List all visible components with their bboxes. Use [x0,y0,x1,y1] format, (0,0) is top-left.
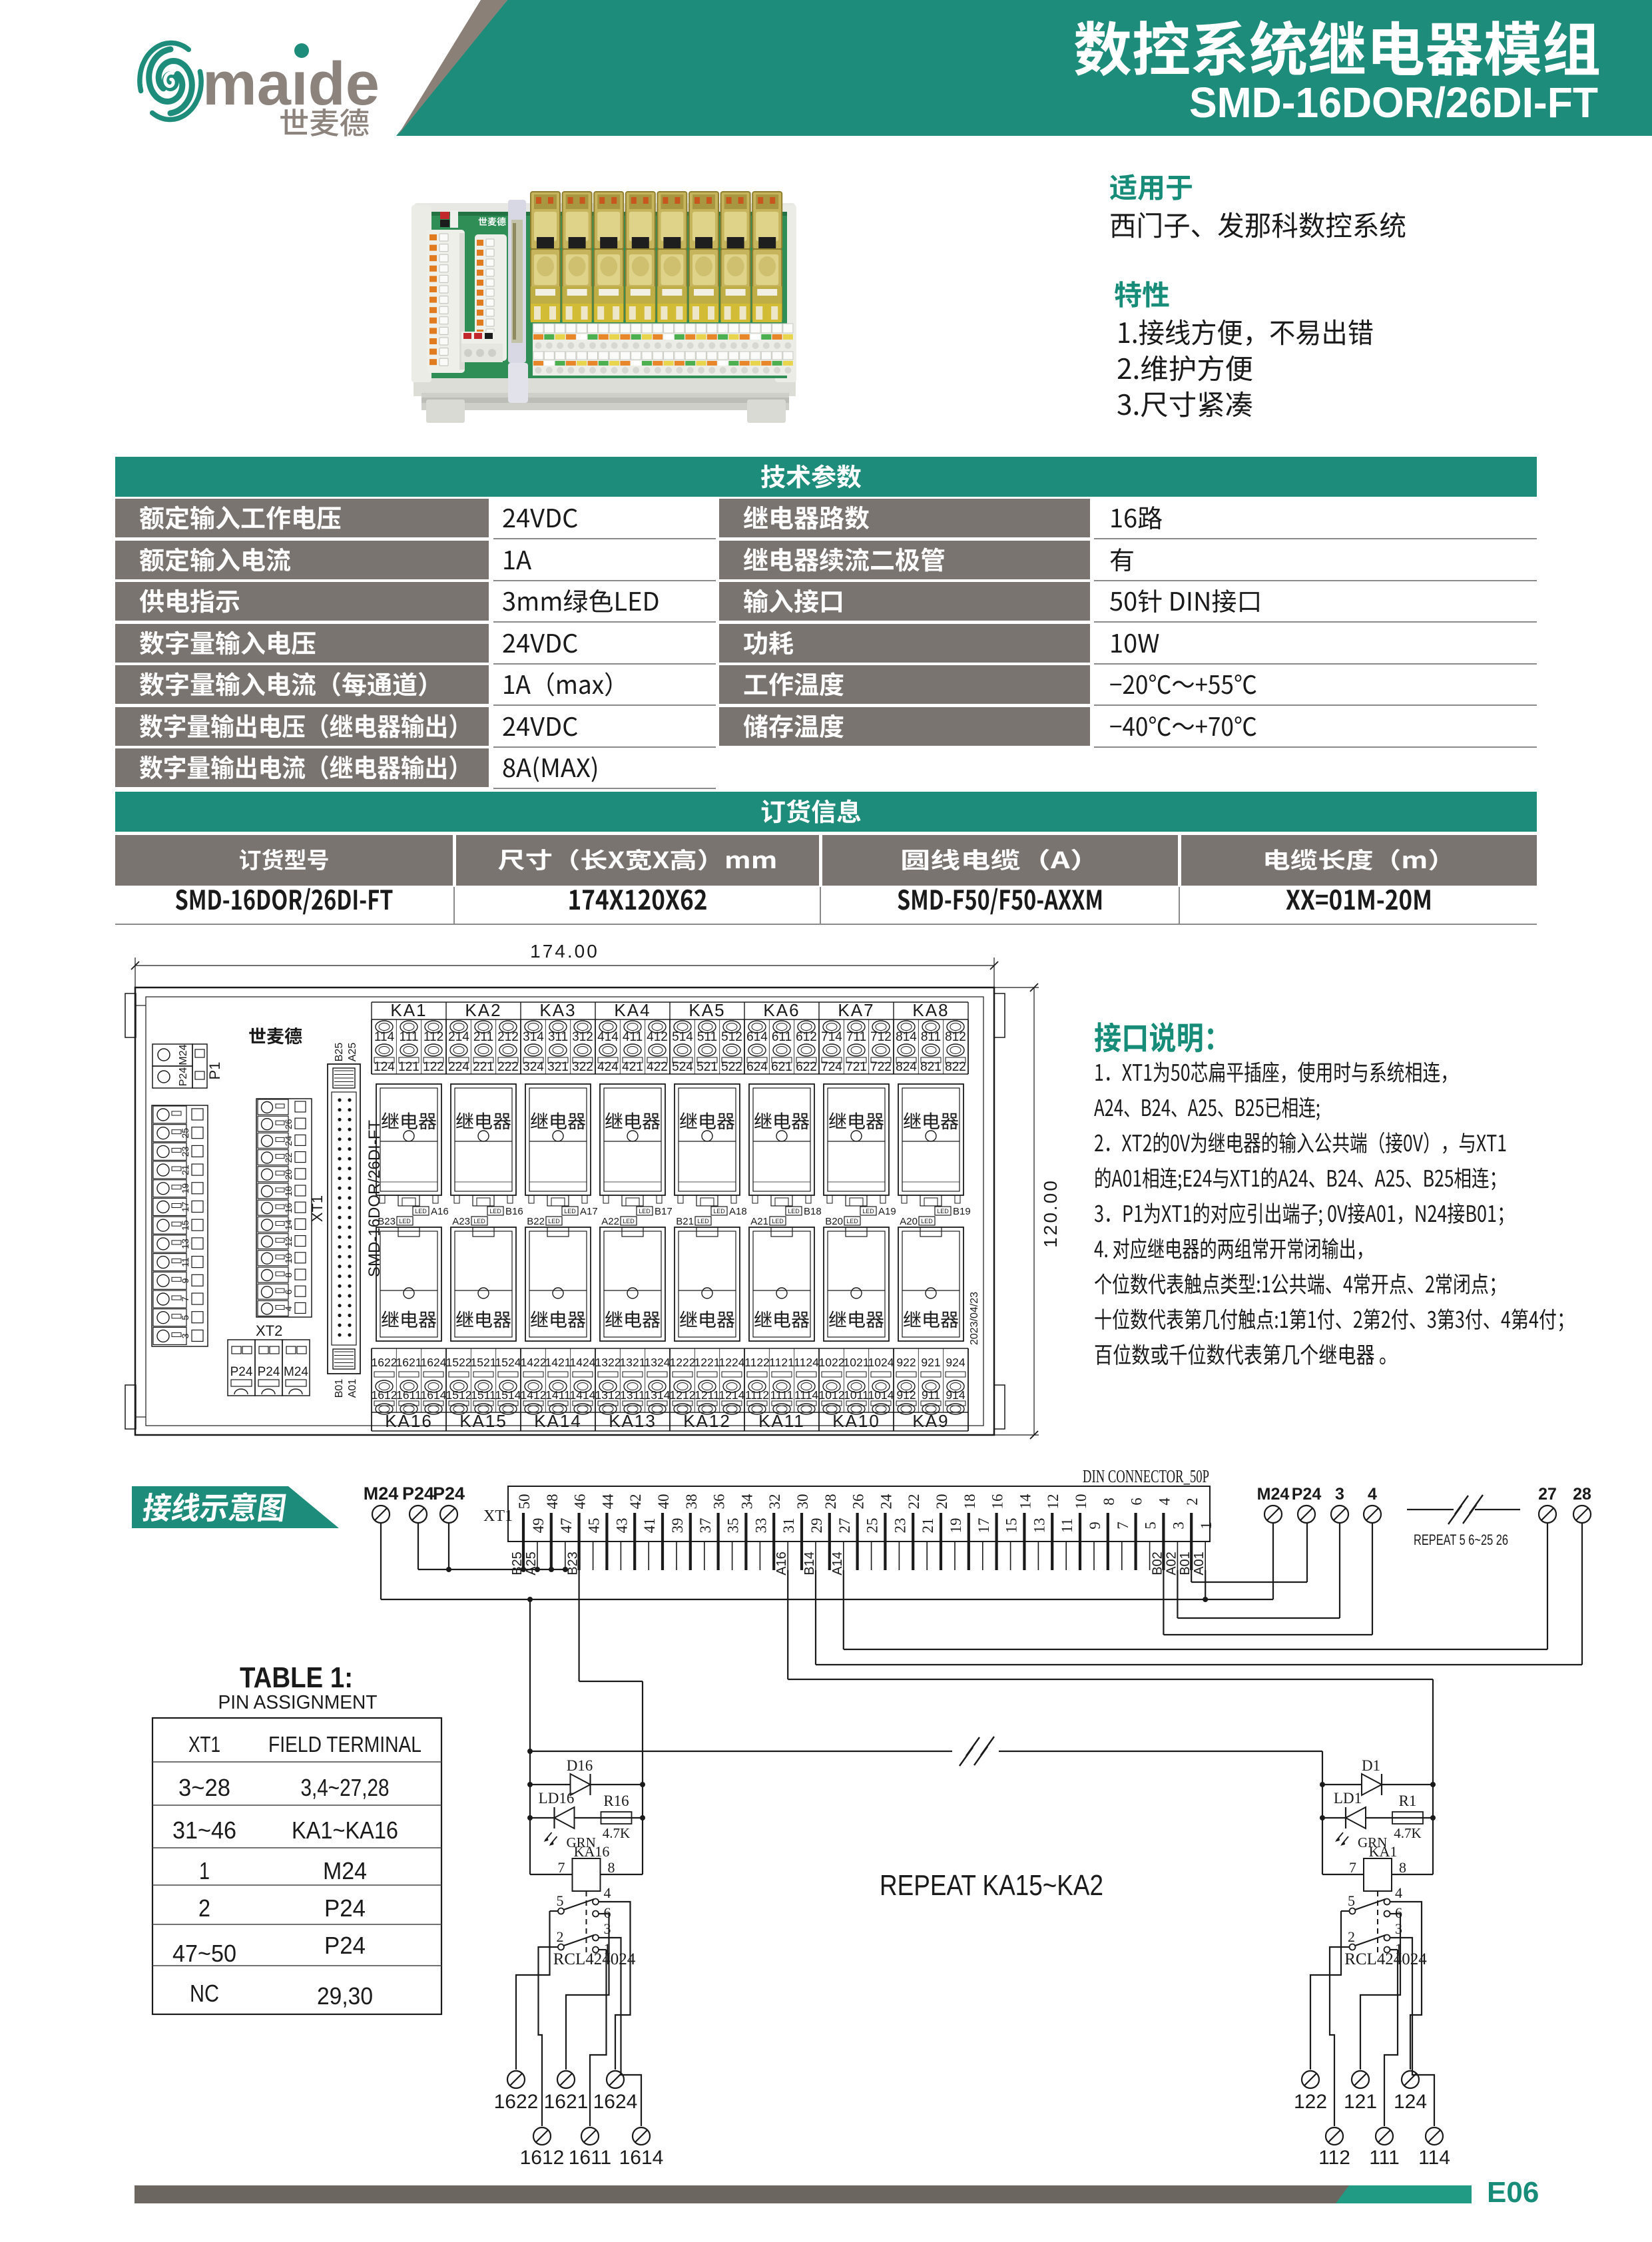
svg-text:122: 122 [1294,2091,1327,2113]
svg-text:B23: B23 [566,1551,581,1575]
svg-text:6: 6 [1129,1498,1145,1506]
svg-text:1414: 1414 [570,1388,596,1402]
svg-text:DIN CONNECTOR_50P: DIN CONNECTOR_50P [1083,1466,1209,1486]
svg-text:1621: 1621 [544,2091,589,2113]
svg-text:22: 22 [906,1494,922,1510]
svg-text:924: 924 [946,1356,965,1369]
svg-text:324: 324 [523,1060,544,1074]
svg-text:P24: P24 [230,1365,253,1379]
svg-text:421: 421 [622,1060,643,1074]
svg-text:414: 414 [597,1030,619,1044]
svg-text:214: 214 [448,1030,469,1044]
svg-text:1314: 1314 [645,1388,671,1402]
svg-text:B25: B25 [334,1043,345,1062]
svg-text:B01: B01 [334,1379,345,1398]
svg-text:1411: 1411 [545,1388,571,1402]
svg-text:KA5: KA5 [688,1000,725,1020]
svg-text:TABLE 1:: TABLE 1: [240,1661,353,1694]
svg-text:3: 3 [1395,1920,1402,1937]
svg-text:2: 2 [1184,1498,1201,1506]
svg-text:KA3: KA3 [539,1000,576,1020]
svg-text:B01: B01 [1178,1551,1193,1575]
svg-text:211: 211 [473,1030,493,1044]
svg-text:B17: B17 [655,1206,673,1217]
svg-text:312: 312 [572,1030,593,1044]
svg-text:46: 46 [572,1494,589,1510]
svg-text:1311: 1311 [620,1388,645,1402]
svg-text:14: 14 [283,1219,294,1230]
svg-text:KA13: KA13 [609,1411,657,1431]
svg-text:1121: 1121 [769,1356,794,1369]
svg-text:LED: LED [473,1218,485,1225]
svg-text:13: 13 [1031,1518,1047,1534]
svg-text:E06: E06 [1487,2176,1539,2209]
svg-text:LED: LED [623,1218,635,1225]
svg-text:KA15: KA15 [459,1411,507,1431]
svg-text:M24: M24 [1257,1485,1290,1504]
svg-text:SMD-16DOR/26DI-FT: SMD-16DOR/26DI-FT [1189,79,1598,127]
svg-text:3~28: 3~28 [178,1774,230,1801]
svg-text:B19: B19 [953,1206,971,1217]
svg-text:KA7: KA7 [838,1000,874,1020]
svg-text:311: 311 [548,1030,568,1044]
svg-text:LED: LED [489,1208,501,1215]
svg-text:maıde: maıde [202,50,380,118]
svg-text:121: 121 [1344,2091,1377,2113]
svg-text:44: 44 [599,1494,616,1510]
svg-text:LED: LED [937,1208,949,1215]
svg-text:B22: B22 [527,1216,545,1227]
svg-text:LED: LED [697,1218,709,1225]
svg-text:B21: B21 [676,1216,694,1227]
svg-text:P24: P24 [324,1894,366,1922]
svg-text:A16: A16 [774,1551,789,1575]
svg-text:4: 4 [1395,1884,1402,1901]
svg-text:27: 27 [836,1518,853,1534]
svg-text:1514: 1514 [495,1388,521,1402]
svg-text:A20: A20 [900,1216,918,1227]
svg-text:1624: 1624 [593,2091,638,2113]
svg-text:1014: 1014 [868,1388,894,1402]
svg-text:124: 124 [1394,2091,1427,2113]
svg-text:1112: 1112 [745,1388,769,1402]
svg-text:721: 721 [846,1060,867,1074]
svg-text:121: 121 [398,1060,419,1074]
svg-text:621: 621 [771,1060,792,1074]
svg-text:2: 2 [557,1928,564,1945]
svg-text:111: 111 [400,1030,419,1044]
svg-text:5: 5 [557,1892,564,1909]
svg-text:1321: 1321 [620,1356,646,1369]
svg-text:39: 39 [669,1518,686,1534]
svg-text:REPEAT KA15~KA2: REPEAT KA15~KA2 [880,1869,1103,1902]
svg-text:120.00: 120.00 [1040,1179,1061,1248]
svg-text:26: 26 [850,1494,867,1510]
svg-text:21: 21 [920,1518,936,1534]
svg-text:521: 521 [696,1060,718,1074]
svg-text:2: 2 [1348,1928,1355,1945]
svg-text:1: 1 [1198,1522,1215,1530]
svg-text:36: 36 [711,1494,728,1510]
svg-text:R1: R1 [1399,1793,1417,1809]
svg-text:1021: 1021 [844,1356,870,1369]
svg-text:24: 24 [283,1135,294,1146]
svg-text:16: 16 [989,1494,1006,1510]
svg-text:811: 811 [921,1030,941,1044]
svg-text:10: 10 [1073,1494,1089,1510]
svg-text:16: 16 [283,1203,294,1213]
svg-text:LD16: LD16 [539,1790,575,1807]
svg-text:1212: 1212 [670,1388,696,1402]
svg-text:SMD-16DOR/26DI-FT: SMD-16DOR/26DI-FT [366,1120,384,1277]
svg-text:1122: 1122 [744,1356,770,1369]
svg-text:1124: 1124 [794,1356,819,1369]
svg-text:10: 10 [283,1253,294,1264]
svg-text:P24: P24 [433,1484,465,1504]
svg-text:224: 224 [448,1060,469,1074]
svg-text:47: 47 [558,1518,575,1534]
svg-text:28: 28 [1573,1485,1591,1504]
svg-text:P24: P24 [1292,1485,1322,1504]
svg-text:4.7K: 4.7K [1394,1825,1421,1841]
svg-text:412: 412 [647,1030,668,1044]
svg-text:40: 40 [655,1494,672,1510]
svg-text:5: 5 [180,1315,190,1320]
svg-text:1: 1 [199,1857,210,1884]
svg-text:1222: 1222 [670,1356,696,1369]
svg-text:114: 114 [374,1030,395,1044]
svg-text:912: 912 [896,1388,916,1402]
svg-text:1421: 1421 [545,1356,571,1369]
svg-text:1024: 1024 [868,1356,894,1369]
svg-text:P24: P24 [324,1932,366,1959]
svg-text:112: 112 [1318,2147,1350,2169]
svg-text:124: 124 [374,1060,395,1074]
svg-text:50: 50 [516,1494,533,1510]
svg-text:12: 12 [1045,1494,1061,1510]
svg-text:NC: NC [190,1980,219,2007]
svg-text:1622: 1622 [494,2091,539,2113]
svg-text:KA16: KA16 [574,1843,610,1860]
svg-text:A21: A21 [750,1216,768,1227]
svg-text:5: 5 [1348,1892,1355,1909]
svg-text:822: 822 [945,1060,966,1074]
svg-text:A19: A19 [878,1206,896,1217]
svg-text:11: 11 [1059,1518,1075,1533]
svg-text:1611: 1611 [396,1388,421,1402]
svg-text:24: 24 [878,1494,894,1510]
svg-text:D16: D16 [567,1757,593,1774]
svg-text:1612: 1612 [372,1388,398,1402]
svg-text:6: 6 [283,1289,294,1294]
svg-text:B18: B18 [804,1206,822,1217]
svg-text:LED: LED [639,1208,651,1215]
svg-text:1214: 1214 [719,1388,745,1402]
svg-text:KA6: KA6 [763,1000,800,1020]
svg-text:B23: B23 [378,1216,396,1227]
svg-text:824: 824 [896,1060,917,1074]
svg-text:A14: A14 [830,1551,845,1575]
svg-text:422: 422 [647,1060,668,1074]
svg-text:1621: 1621 [396,1356,422,1369]
svg-text:18: 18 [962,1494,978,1510]
svg-text:28: 28 [822,1494,839,1510]
svg-text:13: 13 [180,1239,190,1249]
svg-text:23: 23 [180,1146,190,1157]
svg-text:614: 614 [746,1030,768,1044]
svg-text:321: 321 [547,1060,569,1074]
svg-text:KA16: KA16 [385,1411,433,1431]
svg-text:522: 522 [721,1060,742,1074]
svg-text:33: 33 [752,1518,769,1534]
svg-text:RCL424024: RCL424024 [553,1950,636,1968]
svg-text:32: 32 [766,1494,783,1510]
svg-text:29,30: 29,30 [317,1982,373,2010]
svg-text:722: 722 [870,1060,892,1074]
svg-text:1614: 1614 [619,2147,664,2169]
svg-text:622: 622 [796,1060,817,1074]
svg-text:1011: 1011 [844,1388,869,1402]
svg-text:7: 7 [180,1296,190,1302]
svg-text:111: 111 [1369,2147,1400,2169]
svg-text:1221: 1221 [694,1356,720,1369]
svg-text:KA11: KA11 [758,1411,805,1431]
svg-text:17: 17 [180,1202,190,1213]
svg-text:4: 4 [1368,1485,1377,1504]
svg-text:A01: A01 [1192,1551,1207,1575]
svg-text:9: 9 [180,1278,190,1283]
svg-text:48: 48 [544,1494,561,1510]
svg-text:712: 712 [870,1030,892,1044]
svg-text:724: 724 [821,1060,842,1074]
svg-text:17: 17 [975,1518,992,1534]
svg-text:19: 19 [948,1518,964,1534]
svg-text:1524: 1524 [495,1356,521,1369]
svg-text:23: 23 [892,1518,908,1534]
svg-text:PIN ASSIGNMENT: PIN ASSIGNMENT [218,1692,378,1713]
svg-text:1412: 1412 [521,1388,547,1402]
svg-text:LD1: LD1 [1334,1790,1362,1807]
svg-text:R16: R16 [603,1793,629,1809]
svg-text:KA8: KA8 [912,1000,949,1020]
svg-text:LED: LED [862,1208,874,1215]
svg-text:1511: 1511 [471,1388,496,1402]
svg-text:511: 511 [697,1030,717,1044]
svg-text:1424: 1424 [570,1356,596,1369]
svg-text:1521: 1521 [471,1356,497,1369]
svg-text:2023/04/23: 2023/04/23 [969,1292,980,1345]
svg-text:KA9: KA9 [912,1411,949,1431]
svg-text:25: 25 [864,1518,881,1534]
svg-text:B02: B02 [1150,1551,1165,1575]
svg-text:LED: LED [399,1218,411,1225]
svg-text:21: 21 [180,1165,190,1175]
svg-text:LED: LED [713,1208,725,1215]
svg-text:XT2: XT2 [256,1322,282,1339]
svg-text:821: 821 [920,1060,942,1074]
svg-text:1614: 1614 [421,1388,447,1402]
svg-text:7: 7 [1115,1522,1131,1530]
svg-text:KA12: KA12 [683,1411,731,1431]
svg-text:LED: LED [772,1218,784,1225]
svg-text:921: 921 [921,1356,940,1369]
svg-text:714: 714 [821,1030,842,1044]
svg-text:14: 14 [1017,1494,1033,1510]
svg-text:30: 30 [794,1494,811,1510]
svg-text:8: 8 [1399,1859,1406,1876]
svg-text:B16: B16 [505,1206,523,1217]
svg-text:514: 514 [672,1030,693,1044]
svg-text:3: 3 [604,1920,611,1937]
svg-text:A16: A16 [431,1206,449,1217]
svg-text:35: 35 [725,1518,742,1534]
svg-text:38: 38 [683,1494,700,1510]
svg-text:18: 18 [283,1186,294,1197]
svg-text:A01: A01 [347,1379,358,1398]
svg-text:KA14: KA14 [534,1411,582,1431]
svg-text:22: 22 [283,1153,294,1163]
svg-text:411: 411 [623,1030,643,1044]
svg-text:1324: 1324 [645,1356,671,1369]
svg-text:31: 31 [780,1518,797,1534]
svg-text:26: 26 [283,1119,294,1129]
svg-text:M24: M24 [178,1044,189,1065]
svg-text:P24: P24 [178,1067,189,1087]
svg-text:1422: 1422 [521,1356,547,1369]
svg-text:FIELD TERMINAL: FIELD TERMINAL [268,1732,421,1757]
svg-text:42: 42 [627,1494,644,1510]
svg-text:1211: 1211 [694,1388,720,1402]
svg-text:15: 15 [180,1220,190,1231]
svg-text:2: 2 [198,1894,210,1922]
svg-text:3: 3 [1335,1485,1344,1504]
svg-text:15: 15 [1003,1518,1020,1534]
svg-text:612: 612 [796,1030,817,1044]
svg-text:112: 112 [423,1030,443,1044]
svg-text:A18: A18 [729,1206,747,1217]
svg-text:A02: A02 [1164,1551,1179,1575]
svg-text:1622: 1622 [372,1356,398,1369]
svg-text:XT1: XT1 [309,1195,326,1222]
svg-text:49: 49 [530,1518,547,1534]
svg-text:3: 3 [1170,1522,1187,1530]
svg-text:KA1~KA16: KA1~KA16 [292,1817,398,1844]
svg-text:9: 9 [1087,1522,1103,1530]
svg-text:1612: 1612 [520,2147,565,2169]
svg-text:D1: D1 [1362,1757,1380,1774]
svg-text:7: 7 [558,1859,565,1876]
svg-text:LED: LED [788,1208,800,1215]
svg-text:LED: LED [548,1218,560,1225]
svg-text:M24: M24 [364,1484,399,1504]
svg-text:812: 812 [945,1030,966,1044]
svg-text:1022: 1022 [819,1356,845,1369]
svg-text:3,4~27,28: 3,4~27,28 [301,1774,390,1801]
svg-text:LED: LED [415,1208,427,1215]
svg-text:1322: 1322 [595,1356,621,1369]
svg-text:1111: 1111 [770,1388,793,1402]
svg-text:524: 524 [672,1060,693,1074]
svg-text:1624: 1624 [421,1356,447,1369]
svg-text:1522: 1522 [446,1356,472,1369]
svg-text:611: 611 [772,1030,792,1044]
svg-text:REPEAT 5 6~25 26: REPEAT 5 6~25 26 [1414,1532,1508,1548]
svg-text:KA2: KA2 [465,1000,501,1020]
svg-text:19: 19 [180,1183,190,1194]
svg-text:M24: M24 [323,1857,367,1884]
svg-text:222: 222 [497,1060,519,1074]
svg-text:12: 12 [283,1237,294,1247]
svg-text:8: 8 [1101,1498,1117,1506]
svg-text:114: 114 [1418,2147,1450,2169]
svg-text:922: 922 [896,1356,916,1369]
svg-text:M24: M24 [284,1365,308,1379]
svg-text:8: 8 [283,1272,294,1278]
svg-text:29: 29 [808,1518,825,1534]
svg-text:B14: B14 [802,1551,817,1575]
svg-text:1312: 1312 [595,1388,621,1402]
svg-text:1114: 1114 [794,1388,819,1402]
svg-text:P24: P24 [258,1365,280,1379]
svg-text:322: 322 [572,1060,593,1074]
svg-text:25: 25 [180,1128,190,1139]
svg-text:KA4: KA4 [614,1000,651,1020]
svg-text:424: 424 [597,1060,619,1074]
svg-text:512: 512 [721,1030,742,1044]
svg-text:LED: LED [846,1218,858,1225]
svg-text:27: 27 [1538,1485,1557,1504]
svg-text:XT1: XT1 [188,1732,220,1757]
svg-text:KA1: KA1 [390,1000,427,1020]
svg-text:KA1: KA1 [1369,1843,1398,1860]
svg-text:41: 41 [641,1518,658,1534]
svg-text:4: 4 [283,1306,294,1311]
svg-text:P24: P24 [402,1484,434,1504]
svg-text:4: 4 [604,1884,611,1901]
svg-text:711: 711 [846,1030,866,1044]
svg-text:221: 221 [473,1060,494,1074]
svg-text:LED: LED [921,1218,933,1225]
svg-text:A23: A23 [452,1216,470,1227]
svg-text:1224: 1224 [719,1356,745,1369]
svg-text:RCL424024: RCL424024 [1344,1950,1427,1968]
svg-text:7: 7 [1349,1859,1356,1876]
svg-text:624: 624 [746,1060,768,1074]
svg-text:4: 4 [1156,1498,1173,1506]
svg-text:6: 6 [1395,1904,1402,1921]
svg-text:914: 914 [946,1388,965,1402]
svg-text:1512: 1512 [446,1388,472,1402]
svg-text:LED: LED [564,1208,576,1215]
svg-text:5: 5 [1143,1522,1159,1530]
svg-text:6: 6 [604,1904,611,1921]
svg-text:4.7K: 4.7K [603,1825,630,1841]
svg-text:XT1: XT1 [483,1508,513,1525]
svg-text:37: 37 [697,1518,714,1534]
svg-text:122: 122 [423,1060,444,1074]
svg-text:47~50: 47~50 [172,1940,236,1967]
svg-text:P1: P1 [206,1062,223,1080]
svg-text:45: 45 [586,1518,603,1534]
svg-text:A22: A22 [601,1216,619,1227]
svg-text:KA10: KA10 [832,1411,880,1431]
svg-text:911: 911 [922,1388,940,1402]
svg-text:3: 3 [180,1333,190,1338]
svg-text:A25: A25 [347,1043,358,1062]
svg-text:11: 11 [180,1257,190,1267]
svg-text:20: 20 [283,1169,294,1180]
svg-text:1012: 1012 [819,1388,845,1402]
